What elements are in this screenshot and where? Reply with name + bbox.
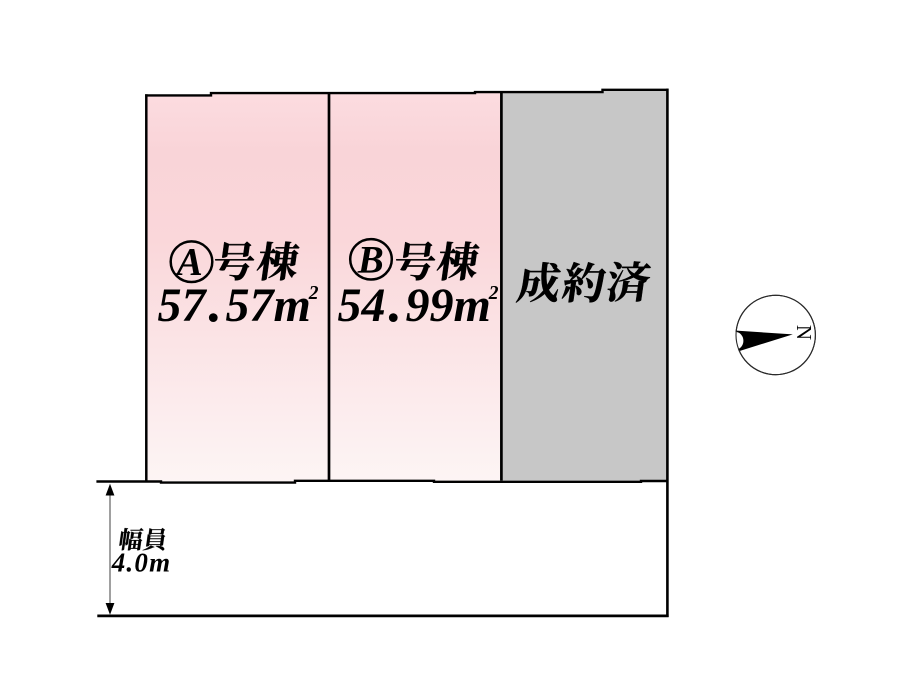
svg-text:4.0m: 4.0m <box>111 548 172 578</box>
svg-text:A: A <box>174 241 203 284</box>
svg-text:N: N <box>792 325 816 340</box>
svg-text:54.99m2: 54.99m2 <box>337 273 498 333</box>
svg-text:B: B <box>357 238 384 281</box>
svg-text:57.57m2: 57.57m2 <box>157 273 318 333</box>
